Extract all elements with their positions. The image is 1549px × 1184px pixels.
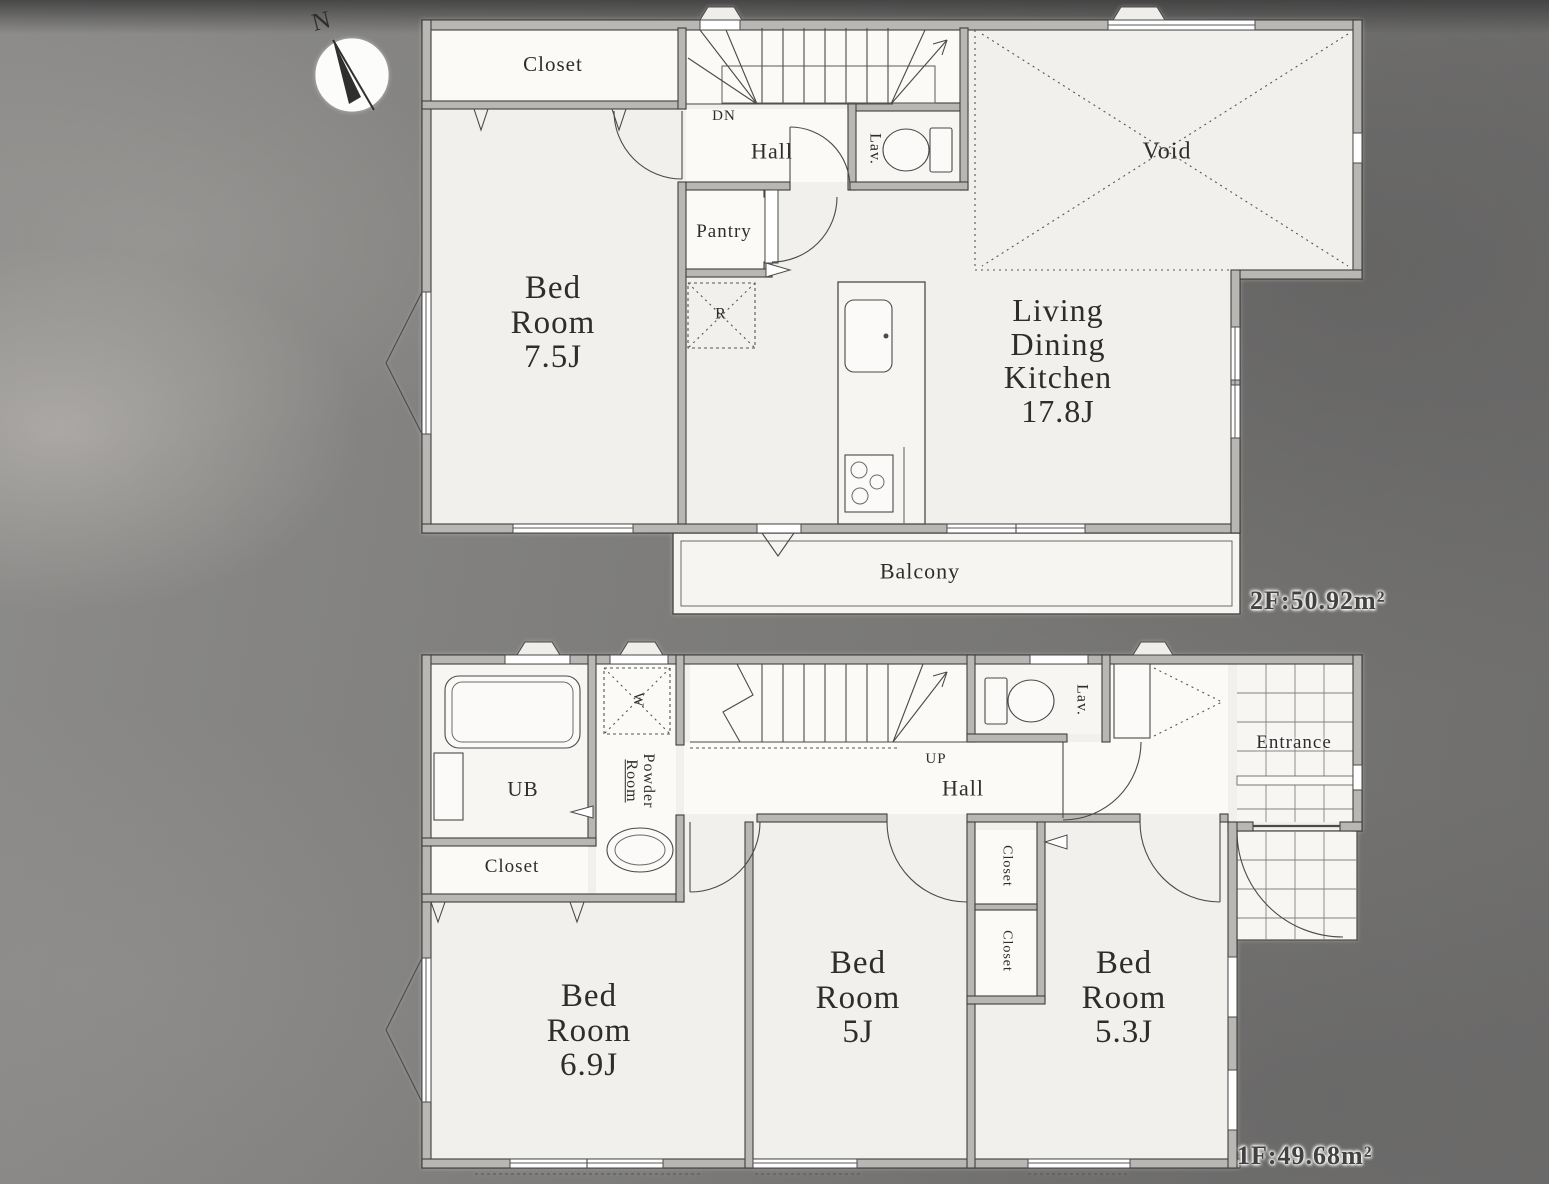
ldk-line1: Living — [1004, 294, 1112, 328]
room-label-closet-a: Closet — [999, 845, 1014, 887]
room-label-lavatory-1f: Lav. — [1073, 684, 1090, 716]
kitchen-stove — [845, 455, 893, 512]
bedroom-2f-line1: Bed — [511, 271, 596, 306]
washer-label: W — [629, 692, 645, 707]
room-label-closet-2f: Closet — [523, 53, 583, 75]
room-label-hall-2f: Hall — [751, 139, 793, 162]
bedroom-sw-line2: Room — [547, 1014, 632, 1049]
ldk-line2: Dining — [1004, 327, 1112, 361]
bedroom-se-line1: Bed — [1082, 946, 1167, 981]
powder-room-line2: Room — [622, 754, 639, 809]
stairs-up-label: UP — [925, 752, 946, 768]
room-label-closet-west: Closet — [485, 857, 540, 877]
room-label-bedroom-2f: Bed Room 7.5J — [511, 271, 596, 375]
bedroom-se-line3: 5.3J — [1082, 1015, 1167, 1050]
bedroom-2f-line2: Room — [511, 306, 596, 341]
room-label-hall-1f: Hall — [942, 776, 984, 799]
entrance-label: Entrance — [1256, 733, 1332, 753]
stairs-dn-label: DN — [712, 109, 736, 125]
bath-vanity — [434, 753, 463, 820]
toilet-1f — [985, 678, 1054, 724]
room-label-bedroom-sw: Bed Room 6.9J — [547, 979, 632, 1083]
compass-rose — [315, 38, 389, 112]
bedroom-sw-line3: 6.9J — [547, 1048, 632, 1083]
bedroom-s-line1: Bed — [816, 946, 901, 981]
floorplan-page: N Closet Bed Room 7.5J DN Hall Lav. Pant… — [0, 0, 1549, 1184]
bedroom-s-line2: Room — [816, 981, 901, 1016]
room-label-pantry: Pantry — [696, 222, 752, 242]
kitchen-counter — [838, 282, 925, 524]
balcony-label: Balcony — [880, 559, 960, 582]
refrigerator-label: R — [715, 307, 727, 324]
room-label-powder-room: Powder Room — [622, 754, 656, 809]
bedroom-2f-line3: 7.5J — [511, 340, 596, 375]
room-label-bedroom-se: Bed Room 5.3J — [1082, 946, 1167, 1050]
powder-sink — [607, 828, 673, 872]
bedroom-sw-line1: Bed — [547, 979, 632, 1014]
floor1-area-label: 1F:49.68m² — [1237, 1141, 1373, 1171]
bedroom-s-line3: 5J — [816, 1015, 901, 1050]
room-label-lavatory-2f: Lav. — [866, 133, 883, 165]
void-label: Void — [1143, 139, 1192, 164]
room-label-closet-b: Closet — [999, 930, 1014, 972]
entrance-step — [1237, 776, 1353, 785]
floor2-area-label: 2F:50.92m² — [1250, 586, 1386, 616]
room-label-bedroom-s: Bed Room 5J — [816, 946, 901, 1050]
toilet-2f — [883, 128, 952, 172]
floor-1-plan — [386, 642, 1362, 1174]
room-label-ub: UB — [507, 778, 538, 800]
bedroom-se-line2: Room — [1082, 981, 1167, 1016]
porch — [1237, 831, 1357, 940]
room-label-ldk: Living Dining Kitchen 17.8J — [1004, 294, 1112, 428]
powder-room-line1: Powder — [639, 754, 656, 809]
ldk-line3: Kitchen — [1004, 361, 1112, 395]
ldk-line4: 17.8J — [1004, 395, 1112, 429]
